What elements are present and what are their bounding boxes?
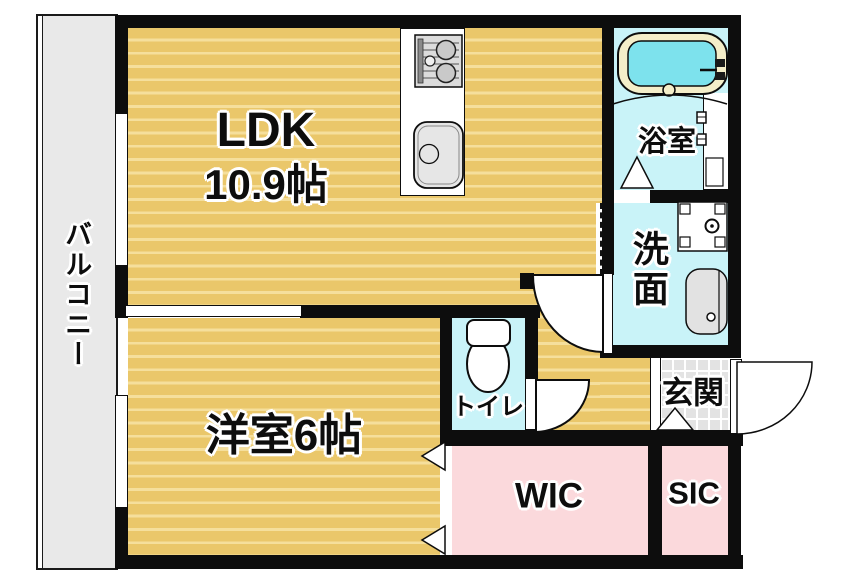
bathroom-window — [703, 93, 728, 190]
wall-right-upper — [728, 15, 741, 358]
counter-dashed-line — [596, 203, 602, 275]
door-frame-post — [520, 273, 534, 289]
wall-left-upper — [115, 15, 128, 113]
toilet-label: トイレ — [452, 394, 524, 419]
balcony-railing — [38, 16, 43, 568]
bathroom-label: 浴室 — [638, 127, 696, 157]
western-room-balcony-window — [115, 395, 128, 508]
wall-washroom-entrance — [600, 345, 741, 358]
wall-ldk-wet — [602, 15, 614, 275]
sic-label: SIC — [668, 478, 720, 511]
ldk-balcony-window — [115, 113, 128, 266]
western-room-label: 洋室6帖 — [206, 413, 362, 459]
entrance-label: 玄関 — [662, 378, 724, 411]
ldk-label: LDK — [217, 106, 316, 156]
wall-left-lower — [115, 508, 128, 568]
wall-top — [115, 15, 741, 28]
entrance-door-swing-arc — [737, 362, 812, 434]
ldk-room-sliding-door — [125, 305, 302, 317]
washroom-label: 洗面 — [629, 230, 667, 310]
washroom-door-leaf — [602, 273, 613, 354]
wall-toilet-right — [525, 318, 538, 380]
wall-wic-sic — [648, 446, 662, 555]
wall-toilet-left — [440, 305, 452, 432]
wall-bottom — [115, 555, 743, 569]
entrance-hall-floor — [600, 358, 652, 432]
toilet-door-leaf — [525, 378, 536, 430]
wall-right-lower — [728, 430, 741, 568]
wall-closet-top — [440, 430, 743, 446]
entrance-step-edge — [650, 358, 661, 432]
ldk-floor — [128, 28, 604, 308]
wall-bath-washroom — [650, 190, 728, 203]
floorplan-canvas: バルコニー LDK 10.9帖 洋室6帖 浴室 洗面 トイレ 玄関 WIC SI… — [0, 0, 851, 586]
entrance-door-leaf — [730, 359, 742, 434]
wic-label: WIC — [515, 479, 583, 516]
kitchen-counter — [400, 28, 465, 196]
balcony-label: バルコニー — [62, 220, 90, 370]
ldk-area-label: 10.9帖 — [204, 163, 328, 207]
wall-ldk-room — [300, 305, 540, 318]
hallway-floor — [535, 305, 604, 432]
